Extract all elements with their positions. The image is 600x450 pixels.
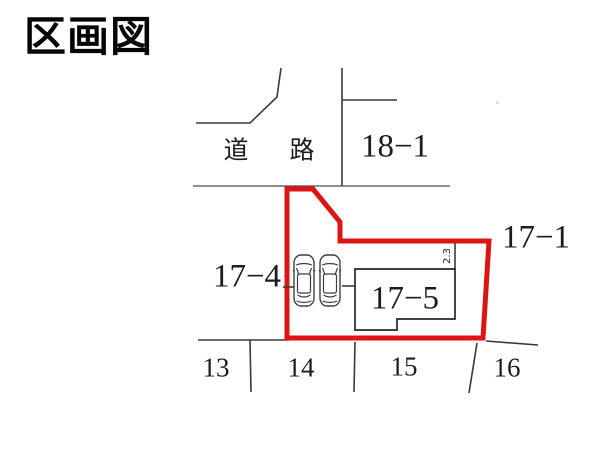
road-label: 道 路	[223, 138, 314, 163]
parcel-label-17-1: 17−1	[502, 222, 570, 255]
road-upper-boundary-line	[196, 68, 281, 123]
parcel-label-16: 16	[494, 355, 521, 382]
parcel-label-17-4: 17−4	[213, 261, 281, 294]
parcel-label-13: 13	[203, 355, 230, 382]
divider-14-15	[354, 342, 355, 392]
divider-15-16	[469, 343, 477, 393]
parcel-label-15: 15	[391, 354, 418, 381]
divider-13-14	[250, 340, 251, 392]
road-label-left: 道	[223, 138, 248, 163]
parcel-label-17-5: 17−5	[371, 283, 439, 316]
bottom-baseline-right	[486, 341, 538, 345]
setback-dimension-label: 2.3	[443, 248, 453, 264]
scan-speck	[496, 101, 499, 104]
parcel-label-18-1: 18−1	[361, 131, 429, 164]
car-icon	[319, 255, 341, 306]
plot-plan-page: 区画図	[0, 0, 600, 450]
parcel-label-14: 14	[288, 355, 315, 382]
road-label-right: 路	[290, 138, 315, 163]
car-icon	[293, 255, 315, 306]
